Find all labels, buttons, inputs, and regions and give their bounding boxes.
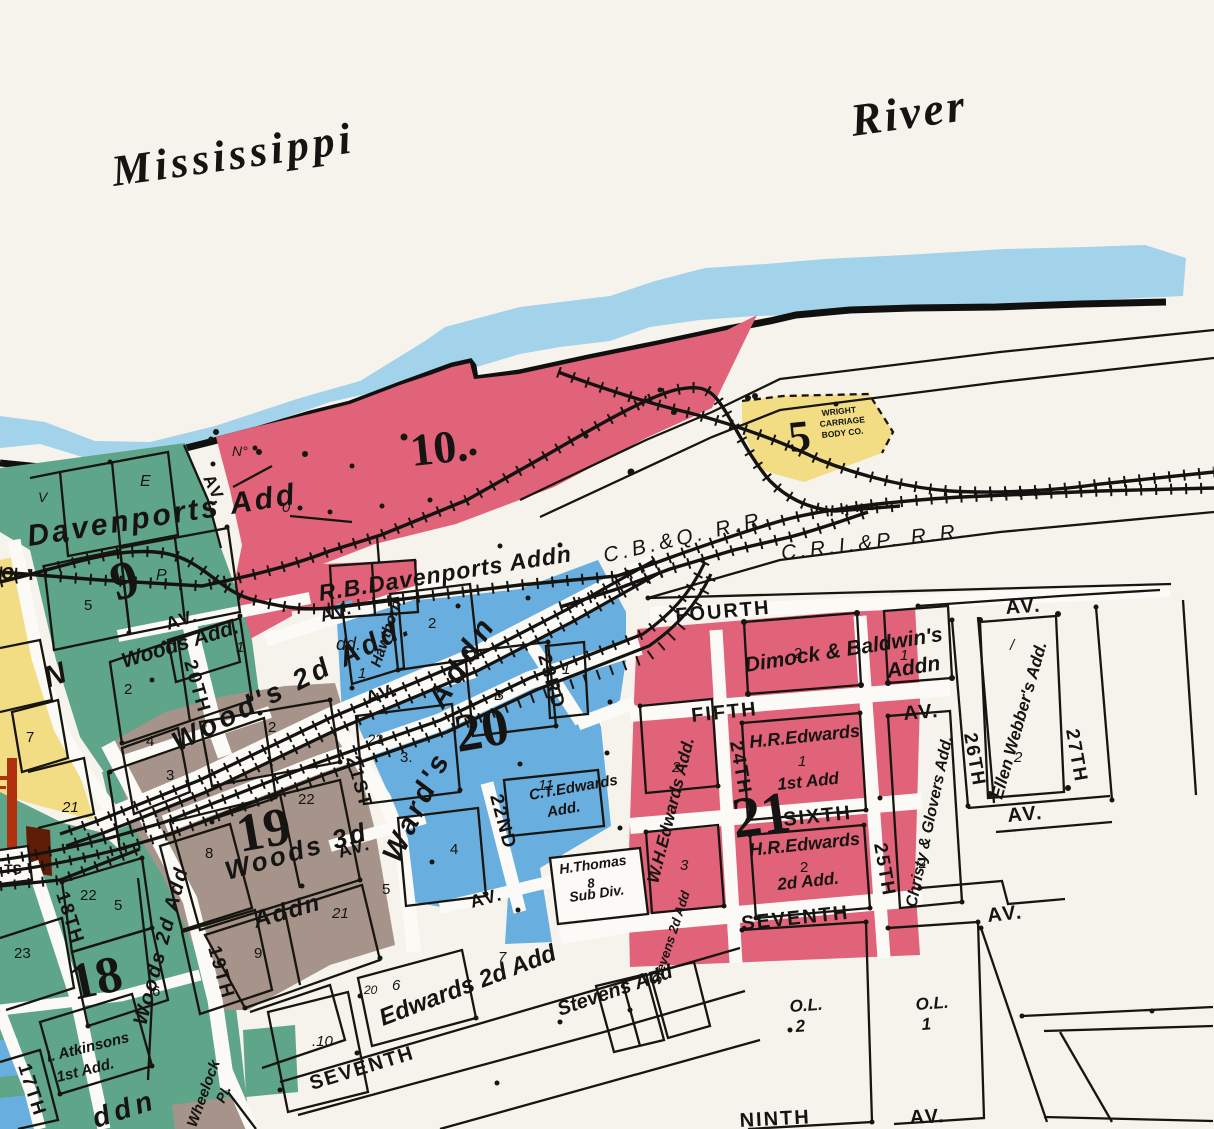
svg-text:2: 2 bbox=[800, 859, 808, 876]
svg-text:4: 4 bbox=[146, 733, 154, 750]
svg-text:3: 3 bbox=[166, 767, 174, 784]
svg-text:AV.: AV. bbox=[1005, 595, 1042, 619]
svg-text:o.: o. bbox=[0, 557, 22, 585]
svg-text:NINTH: NINTH bbox=[739, 1106, 811, 1129]
svg-text:1: 1 bbox=[900, 647, 908, 664]
svg-text:21: 21 bbox=[331, 905, 349, 922]
svg-text:2: 2 bbox=[428, 615, 436, 632]
svg-text:O.L.: O.L. bbox=[915, 993, 949, 1014]
svg-text:7: 7 bbox=[26, 729, 34, 746]
svg-text:1: 1 bbox=[236, 639, 244, 656]
svg-text:3.: 3. bbox=[400, 749, 413, 766]
svg-text:2: 2 bbox=[268, 719, 276, 736]
svg-text:AV.: AV. bbox=[909, 1105, 946, 1129]
svg-text:5: 5 bbox=[114, 897, 122, 914]
svg-text:E: E bbox=[140, 473, 151, 490]
svg-text:2: 2 bbox=[794, 1016, 806, 1036]
svg-text:dd.: dd. bbox=[336, 634, 361, 654]
svg-text:B: B bbox=[494, 687, 504, 704]
svg-text:21: 21 bbox=[61, 799, 79, 816]
svg-text:11: 11 bbox=[538, 777, 554, 794]
svg-text:9: 9 bbox=[254, 945, 262, 962]
svg-text:0: 0 bbox=[282, 499, 291, 516]
svg-text:AV.: AV. bbox=[986, 901, 1024, 927]
svg-text:10.: 10. bbox=[408, 419, 471, 476]
svg-text:2: 2 bbox=[124, 681, 132, 698]
svg-text:6: 6 bbox=[392, 977, 401, 994]
svg-text:7: 7 bbox=[498, 949, 507, 966]
svg-text:N°: N° bbox=[232, 443, 248, 459]
svg-text:23: 23 bbox=[368, 731, 384, 747]
svg-text:20: 20 bbox=[450, 695, 514, 763]
svg-text:2: 2 bbox=[671, 759, 681, 776]
svg-text:3: 3 bbox=[680, 857, 689, 874]
svg-text:5: 5 bbox=[84, 597, 92, 614]
svg-text:1: 1 bbox=[358, 665, 366, 682]
svg-text:20: 20 bbox=[363, 983, 378, 997]
svg-text:O.L.: O.L. bbox=[789, 995, 823, 1016]
svg-text:5: 5 bbox=[382, 881, 390, 898]
svg-text:4: 4 bbox=[450, 841, 458, 858]
svg-text:TS: TS bbox=[4, 861, 22, 877]
svg-text:AV.: AV. bbox=[1007, 802, 1045, 827]
svg-text:22: 22 bbox=[298, 791, 315, 808]
svg-text:P: P bbox=[156, 567, 167, 584]
svg-text:6: 6 bbox=[152, 983, 160, 1000]
svg-text:AV.: AV. bbox=[903, 700, 941, 725]
svg-text:1: 1 bbox=[562, 661, 570, 678]
svg-text:1: 1 bbox=[921, 1014, 932, 1034]
svg-text:8: 8 bbox=[205, 845, 213, 862]
svg-text:22: 22 bbox=[80, 887, 97, 904]
svg-text:.10: .10 bbox=[312, 1033, 334, 1050]
svg-text:1: 1 bbox=[798, 753, 806, 770]
svg-text:2: 2 bbox=[794, 645, 802, 662]
svg-text:2: 2 bbox=[918, 855, 926, 872]
svg-text:2: 2 bbox=[1013, 749, 1023, 766]
svg-text:23: 23 bbox=[14, 945, 31, 962]
